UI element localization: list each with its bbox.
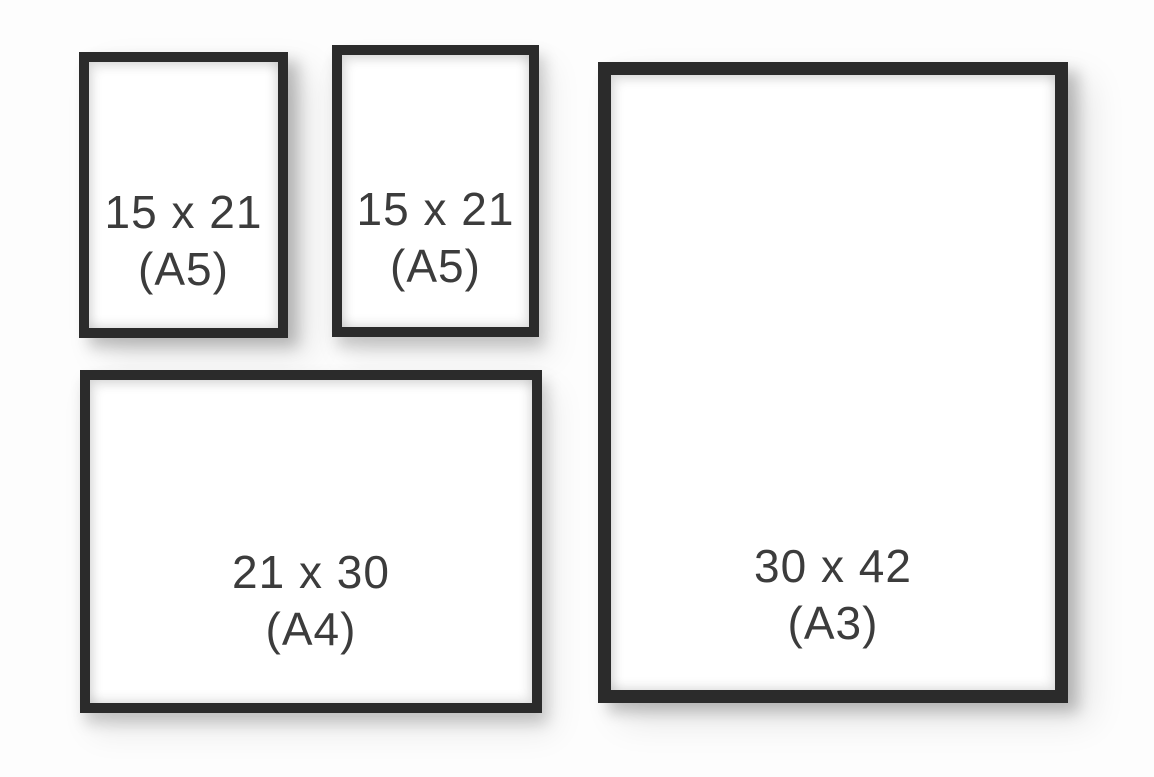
frame-size-label: 15 x 21 (342, 181, 529, 238)
frame-size-label: 30 x 42 (611, 538, 1055, 595)
frame-label: 30 x 42 (A3) (611, 538, 1055, 652)
frame-a5-left: 15 x 21 (A5) (79, 52, 288, 338)
frame-a4: 21 x 30 (A4) (80, 370, 542, 713)
frame-format-label: (A3) (611, 595, 1055, 652)
frame-a3: 30 x 42 (A3) (598, 62, 1068, 703)
frame-label: 15 x 21 (A5) (342, 181, 529, 295)
frame-size-label: 15 x 21 (89, 184, 278, 241)
frame-label: 15 x 21 (A5) (89, 184, 278, 298)
frame-format-label: (A5) (342, 238, 529, 295)
frame-size-comparison-scene: 15 x 21 (A5) 15 x 21 (A5) 30 x 42 (A3) 2… (0, 0, 1154, 777)
frame-format-label: (A5) (89, 241, 278, 298)
frame-format-label: (A4) (90, 601, 532, 658)
frame-label: 21 x 30 (A4) (90, 544, 532, 658)
frame-size-label: 21 x 30 (90, 544, 532, 601)
frame-a5-middle: 15 x 21 (A5) (332, 45, 539, 337)
